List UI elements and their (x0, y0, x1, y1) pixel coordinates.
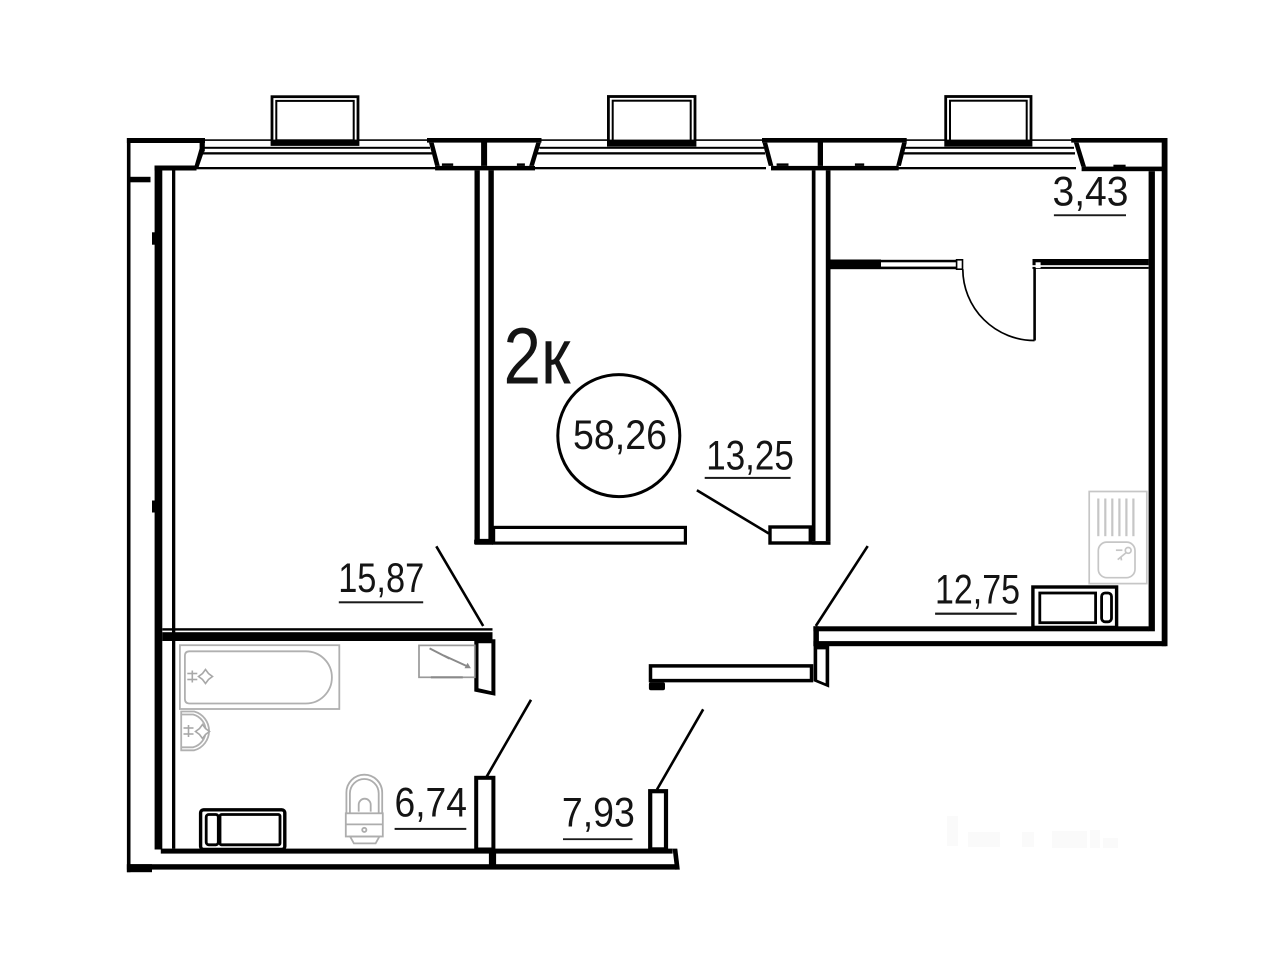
svg-text:15,87: 15,87 (338, 554, 424, 601)
svg-text:2к: 2к (504, 312, 572, 401)
svg-text:12,75: 12,75 (935, 565, 1020, 612)
svg-text:6,74: 6,74 (395, 779, 468, 826)
svg-text:13,25: 13,25 (706, 432, 794, 479)
svg-text:58,26: 58,26 (573, 411, 667, 458)
svg-text:3,43: 3,43 (1053, 168, 1129, 215)
svg-text:7,93: 7,93 (562, 789, 635, 836)
